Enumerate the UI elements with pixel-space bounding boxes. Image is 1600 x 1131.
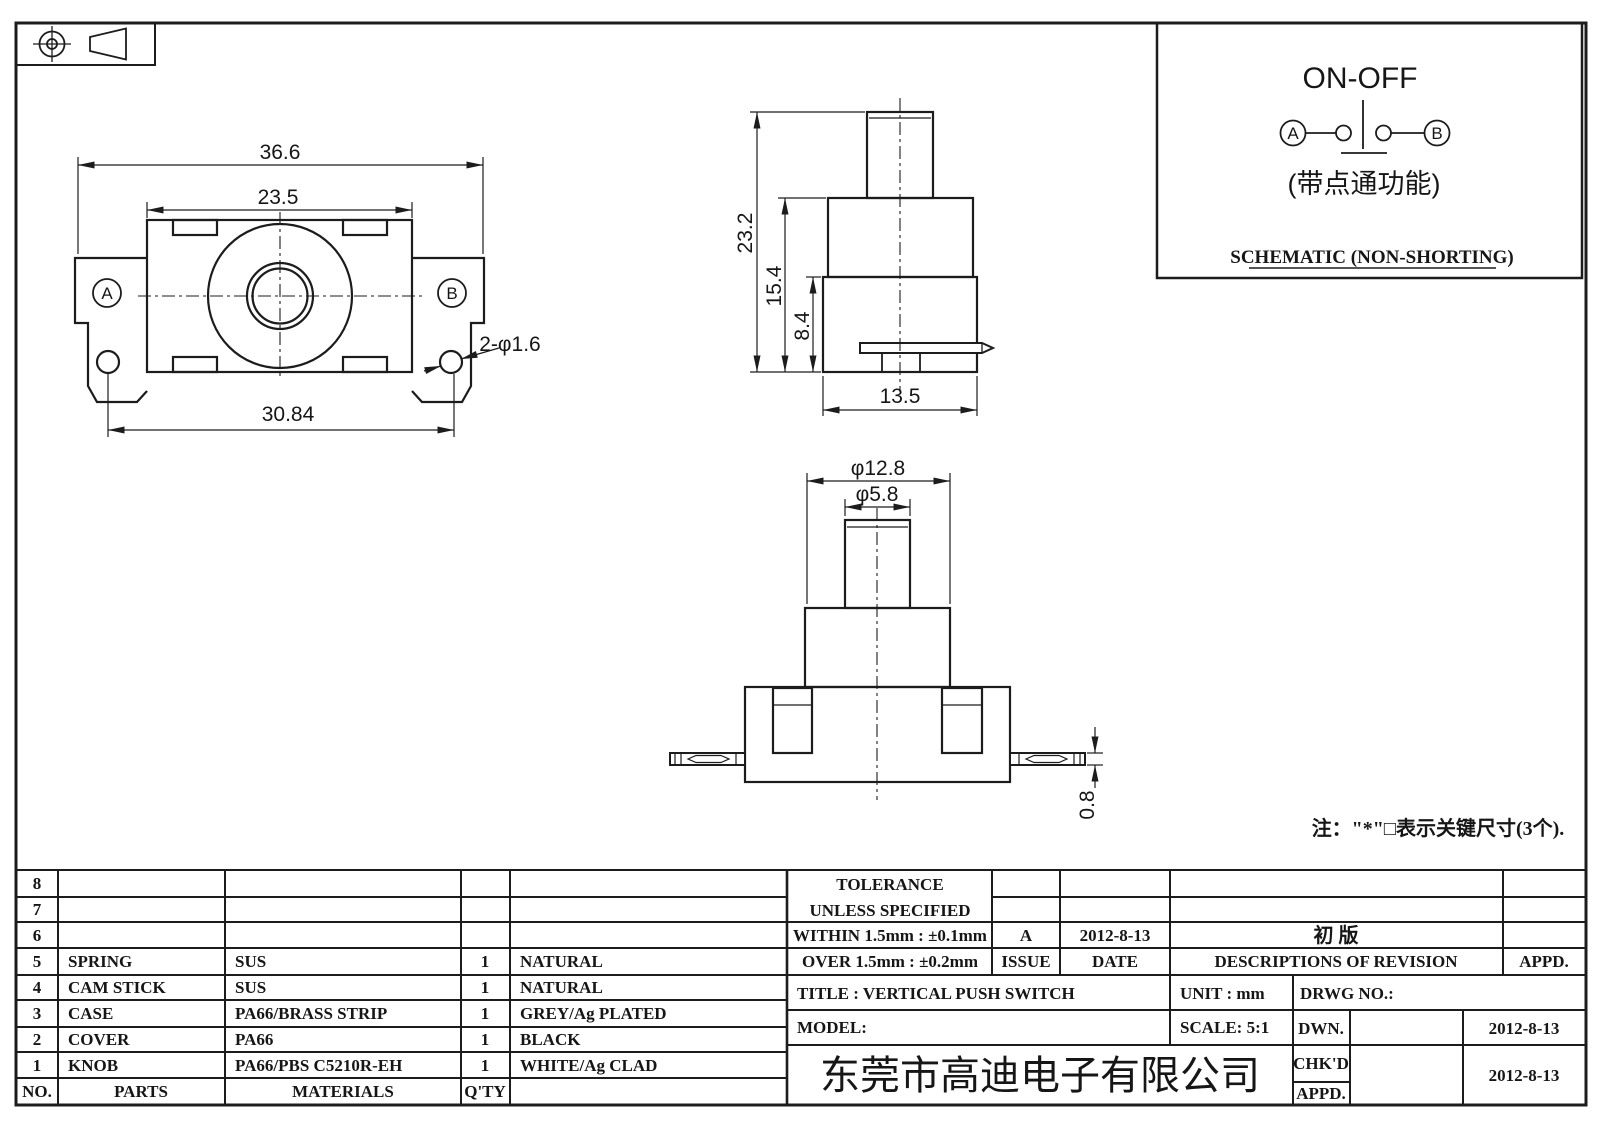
schematic-title: ON-OFF	[1303, 62, 1418, 95]
dim-base-width: 13.5	[880, 385, 921, 408]
chkd-date: 2012-8-13	[1489, 1066, 1560, 1085]
row-no: 5	[33, 952, 42, 971]
row-no: 4	[33, 978, 42, 997]
dim-body-width: 23.5	[258, 186, 299, 209]
revision-descriptions-label: DESCRIPTIONS OF REVISION	[1214, 952, 1458, 971]
tolerance-line2: UNLESS SPECIFIED	[809, 901, 970, 920]
row-finish: NATURAL	[520, 952, 603, 971]
row-qty: 1	[481, 1030, 490, 1049]
chkd-label: CHK'D	[1293, 1054, 1349, 1073]
dwn-date: 2012-8-13	[1489, 1019, 1560, 1038]
row-no: 8	[33, 874, 42, 893]
side-view: 23.2 15.4 8.4 13.5	[734, 98, 993, 416]
row-qty: 1	[481, 978, 490, 997]
front-view-pin-right	[1010, 753, 1085, 765]
dwn-label: DWN.	[1298, 1019, 1344, 1038]
parts-header-parts: PARTS	[114, 1082, 168, 1101]
row-finish: BLACK	[520, 1030, 581, 1049]
drawing-sheet: ON-OFF A B (带点通功能) SCHEMATIC (NON-SHORTI…	[0, 0, 1600, 1131]
row-material: PA66	[235, 1030, 273, 1049]
row-no: 7	[33, 900, 42, 919]
front-view-pin-left	[670, 753, 745, 765]
parts-list: 8 7 6 5 SPRING SUS 1 NATURAL 4 CAM STICK…	[22, 874, 666, 1101]
parts-header-qty: Q'TY	[464, 1082, 506, 1101]
top-view: A B 36.6 23.5 30.84 2-φ1.6	[75, 141, 541, 437]
row-finish: NATURAL	[520, 978, 603, 997]
row-no: 3	[33, 1004, 42, 1023]
drwg-no-field: DRWG NO.:	[1300, 984, 1394, 1003]
dim-hole-span: 30.84	[262, 403, 315, 426]
dim-overall-width: 36.6	[260, 141, 301, 164]
schematic-caption: SCHEMATIC (NON-SHORTING)	[1230, 247, 1513, 268]
mounting-hole-a	[97, 351, 119, 373]
revision-description-value: 初 版	[1314, 923, 1359, 947]
drawing-title: TITLE : VERTICAL PUSH SWITCH	[797, 984, 1075, 1003]
drawing-canvas: ON-OFF A B (带点通功能) SCHEMATIC (NON-SHORTI…	[0, 0, 1600, 1131]
row-part: SPRING	[68, 952, 132, 971]
top-view-label-a: A	[101, 284, 113, 303]
unit-field: UNIT : mm	[1180, 984, 1265, 1003]
projection-cone-icon	[90, 29, 126, 60]
parts-header-no: NO.	[22, 1082, 52, 1101]
dim-body-diameter: φ12.8	[851, 457, 906, 480]
dim-mid-height: 15.4	[763, 265, 786, 306]
appd-label: APPD.	[1296, 1084, 1346, 1103]
row-qty: 1	[481, 1004, 490, 1023]
row-finish: WHITE/Ag CLAD	[520, 1056, 657, 1075]
dim-stem-diameter: φ5.8	[856, 483, 899, 506]
schematic-terminal-a: A	[1287, 124, 1299, 143]
switch-circuit-symbol: A B	[1281, 100, 1450, 153]
side-view-terminal-pin	[860, 343, 993, 353]
parts-header-materials: MATERIALS	[292, 1082, 394, 1101]
revision-appd-label: APPD.	[1519, 952, 1569, 971]
row-no: 2	[33, 1030, 42, 1049]
row-part: COVER	[68, 1030, 130, 1049]
mounting-hole-b	[440, 351, 462, 373]
row-part: KNOB	[68, 1056, 118, 1075]
dim-total-height: 23.2	[734, 213, 757, 254]
row-material: SUS	[235, 952, 266, 971]
company-name: 东莞市高迪电子有限公司	[820, 1054, 1260, 1098]
scale-field: SCALE: 5:1	[1180, 1018, 1269, 1037]
projection-target-icon	[33, 26, 71, 62]
row-qty: 1	[481, 1056, 490, 1075]
row-material: SUS	[235, 978, 266, 997]
row-no: 1	[33, 1056, 42, 1075]
row-material: PA66/PBS C5210R-EH	[235, 1056, 402, 1075]
top-view-label-b: B	[446, 284, 457, 303]
schematic-terminal-b: B	[1431, 124, 1442, 143]
key-dimension-note: 注："*"□表示关键尺寸(3个).	[1312, 816, 1565, 840]
title-block: TITLE : VERTICAL PUSH SWITCH UNIT : mm D…	[797, 984, 1559, 1103]
schematic-subtitle: (带点通功能)	[1288, 169, 1441, 199]
revision-issue-value: A	[1020, 926, 1033, 945]
row-no: 6	[33, 926, 42, 945]
revision-issue-label: ISSUE	[1001, 952, 1050, 971]
schematic-box: ON-OFF A B (带点通功能) SCHEMATIC (NON-SHORTI…	[1157, 23, 1582, 278]
front-view: φ12.8 φ5.8 0.8	[670, 457, 1103, 820]
revision-date-label: DATE	[1092, 952, 1138, 971]
row-material: PA66/BRASS STRIP	[235, 1004, 387, 1023]
row-finish: GREY/Ag PLATED	[520, 1004, 667, 1023]
revision-date-value: 2012-8-13	[1080, 926, 1151, 945]
dim-pin-thickness: 0.8	[1076, 790, 1099, 819]
projection-symbol-box	[16, 23, 155, 65]
tolerance-within: WITHIN 1.5mm : ±0.1mm	[793, 926, 987, 945]
model-field: MODEL:	[797, 1018, 867, 1037]
tolerance-over: OVER 1.5mm : ±0.2mm	[802, 952, 978, 971]
dim-hole-diameter: 2-φ1.6	[479, 333, 540, 356]
dim-base-height: 8.4	[791, 311, 814, 341]
tolerance-line1: TOLERANCE	[836, 875, 943, 894]
row-part: CASE	[68, 1004, 113, 1023]
row-qty: 1	[481, 952, 490, 971]
row-part: CAM STICK	[68, 978, 167, 997]
